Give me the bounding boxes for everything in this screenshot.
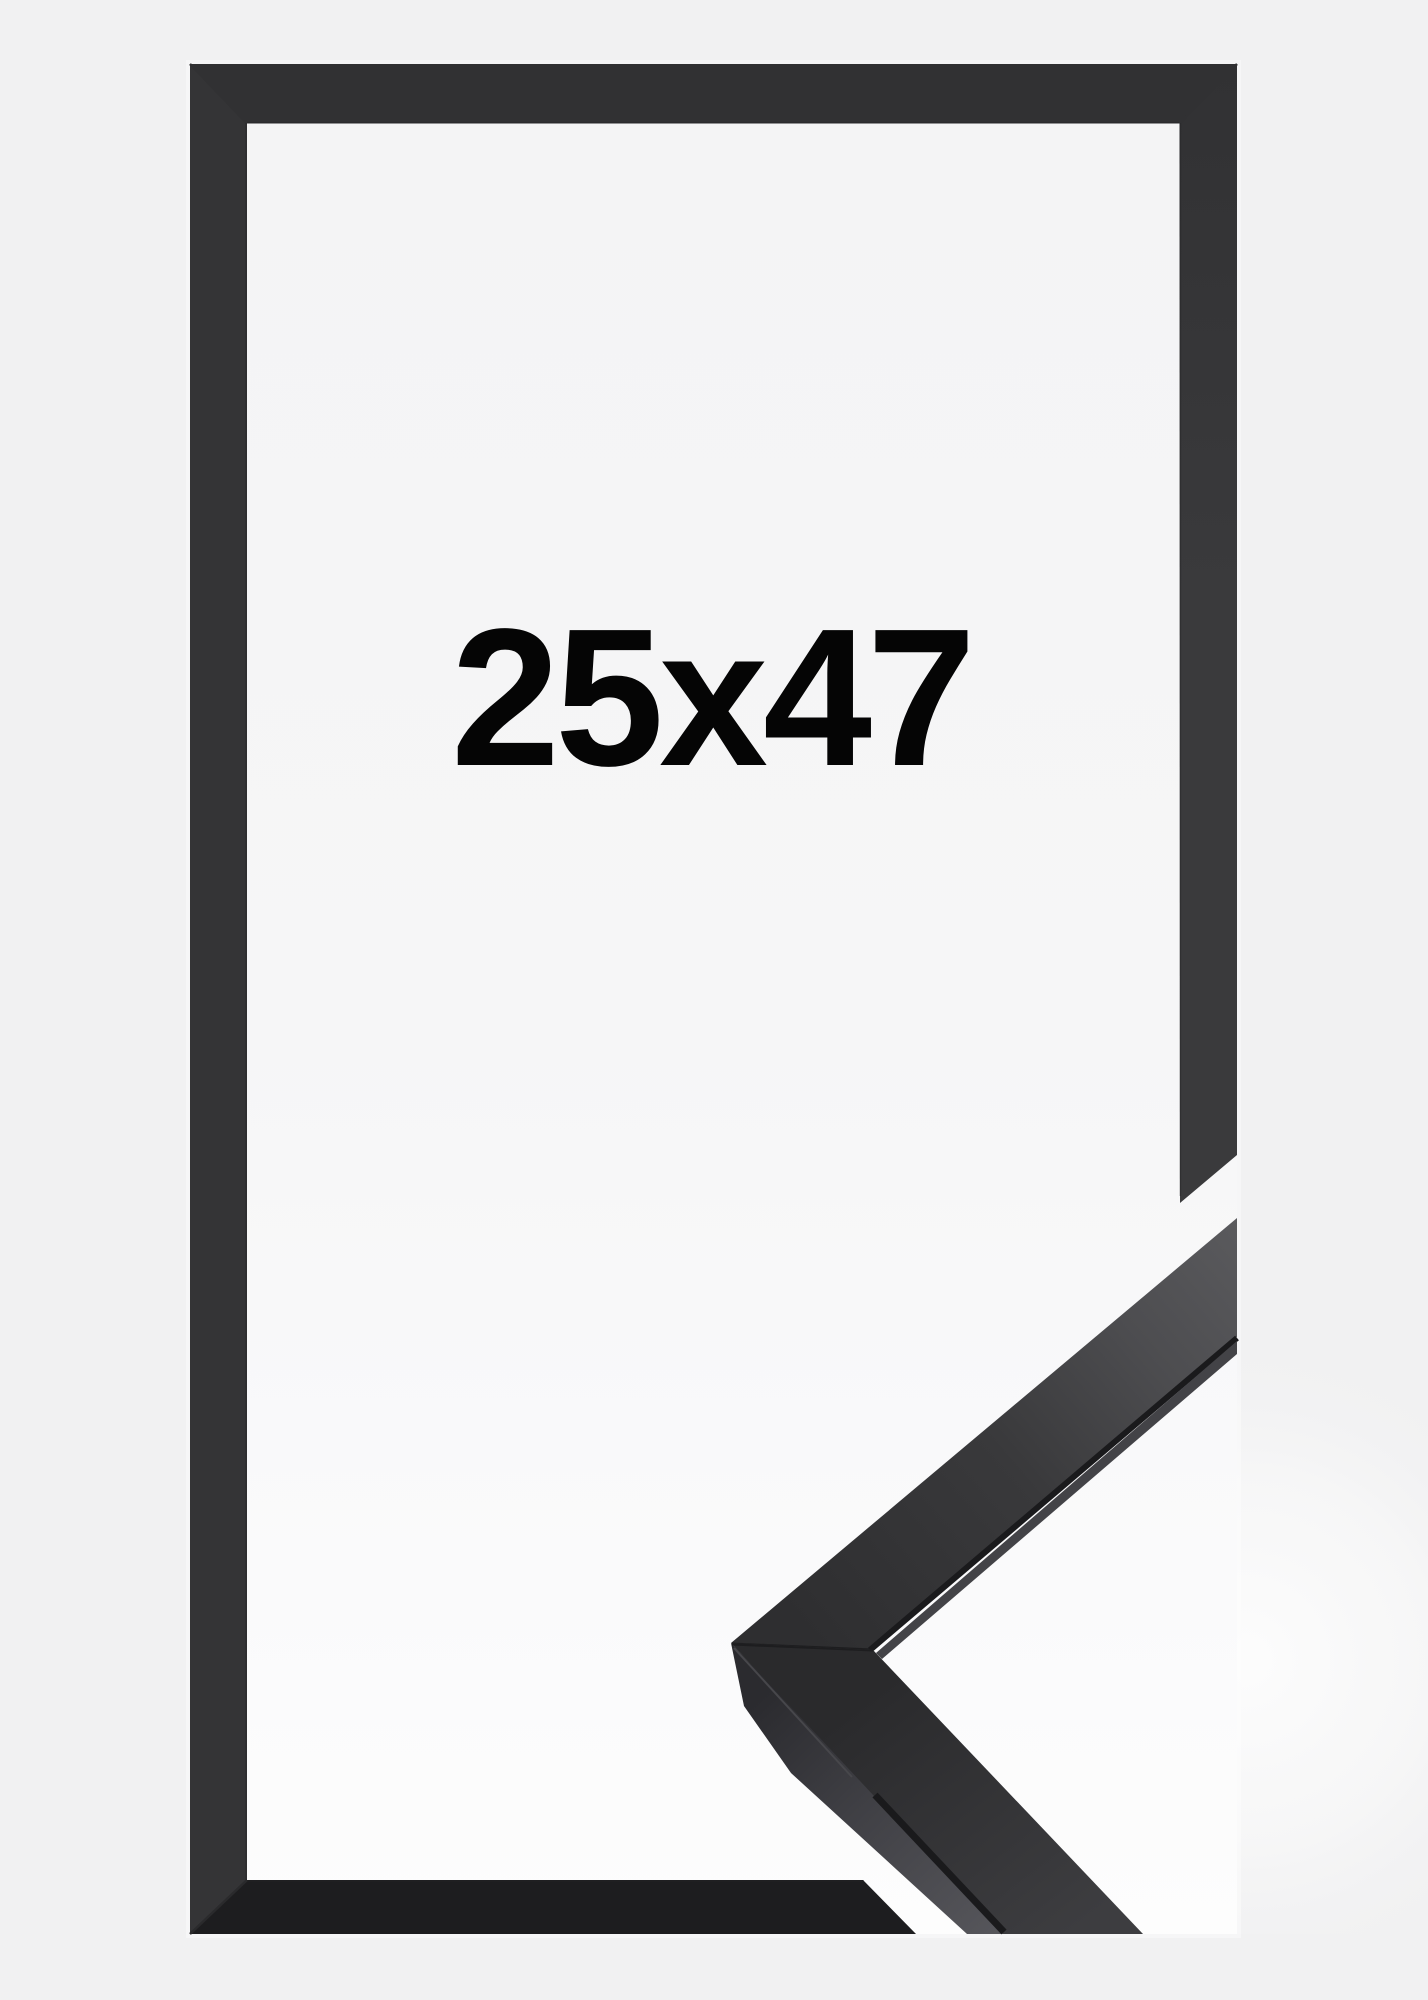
- svg-text:25x47: 25x47: [451, 588, 971, 807]
